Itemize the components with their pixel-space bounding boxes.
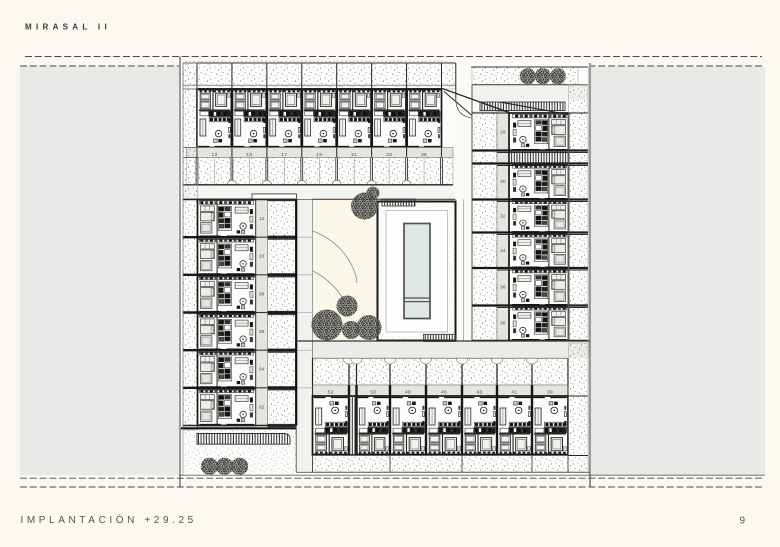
svg-text:06: 06 bbox=[259, 329, 265, 334]
svg-text:IMPLANTACIÓN +29.25: IMPLANTACIÓN +29.25 bbox=[21, 513, 197, 526]
svg-text:36: 36 bbox=[500, 284, 506, 289]
svg-text:39: 39 bbox=[547, 390, 553, 396]
svg-text:41: 41 bbox=[512, 390, 518, 396]
svg-text:15: 15 bbox=[246, 152, 252, 158]
svg-text:52: 52 bbox=[328, 390, 334, 396]
svg-text:17: 17 bbox=[281, 152, 287, 158]
svg-text:34: 34 bbox=[500, 248, 506, 253]
svg-text:28: 28 bbox=[500, 129, 506, 134]
svg-text:10: 10 bbox=[259, 254, 265, 259]
svg-text:04: 04 bbox=[259, 367, 265, 372]
svg-text:9: 9 bbox=[739, 516, 745, 527]
svg-text:38: 38 bbox=[500, 321, 506, 326]
svg-text:25: 25 bbox=[421, 152, 427, 158]
svg-text:43: 43 bbox=[477, 390, 483, 396]
svg-text:30: 30 bbox=[500, 179, 506, 184]
svg-text:13: 13 bbox=[211, 152, 217, 158]
svg-text:19: 19 bbox=[316, 152, 322, 158]
svg-text:46: 46 bbox=[441, 390, 447, 396]
svg-text:50: 50 bbox=[370, 390, 376, 396]
svg-text:MIRASAL II: MIRASAL II bbox=[25, 23, 111, 32]
svg-text:02: 02 bbox=[259, 404, 265, 409]
svg-text:21: 21 bbox=[351, 152, 357, 158]
svg-text:23: 23 bbox=[386, 152, 392, 158]
svg-text:32: 32 bbox=[500, 214, 506, 219]
svg-text:08: 08 bbox=[259, 291, 265, 296]
svg-text:48: 48 bbox=[405, 390, 411, 396]
svg-text:12: 12 bbox=[259, 216, 265, 221]
